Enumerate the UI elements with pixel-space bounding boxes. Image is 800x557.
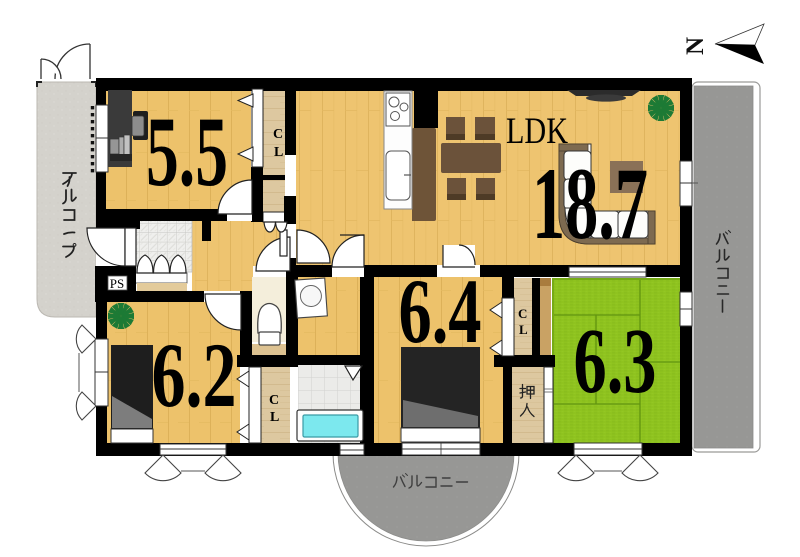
svg-text:L: L	[274, 145, 283, 160]
svg-text:C: C	[273, 127, 283, 142]
svg-text:N: N	[682, 37, 709, 55]
svg-text:5.5: 5.5	[146, 96, 228, 207]
svg-text:6.4: 6.4	[399, 260, 482, 362]
svg-text:6.2: 6.2	[152, 324, 237, 426]
svg-text:L: L	[519, 322, 528, 337]
svg-text:C: C	[518, 306, 527, 321]
svg-text:L: L	[270, 410, 279, 425]
svg-text:C: C	[269, 393, 279, 408]
svg-text:LDK: LDK	[506, 111, 568, 152]
svg-text:PS: PS	[110, 276, 124, 291]
svg-text:6.3: 6.3	[574, 310, 657, 413]
svg-text:18.7: 18.7	[532, 147, 648, 261]
